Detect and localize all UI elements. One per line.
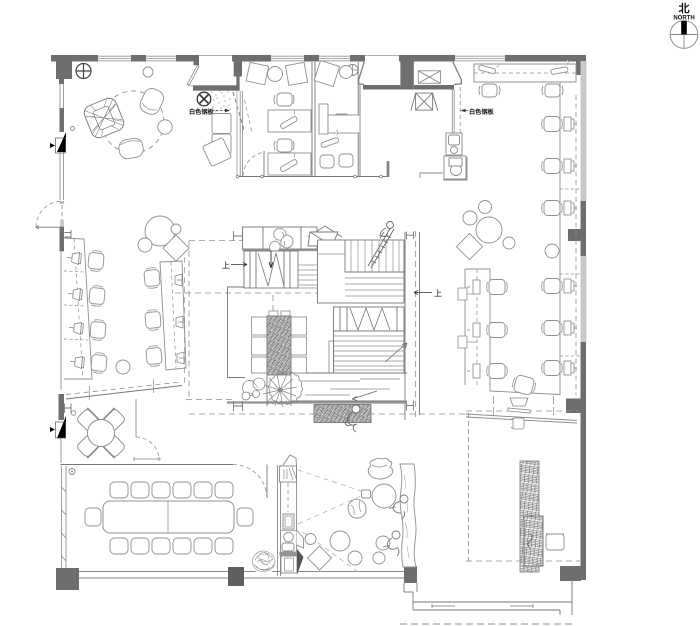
svg-text:上: 上 — [222, 261, 230, 270]
svg-text:上: 上 — [434, 289, 442, 298]
svg-text:白色钢板: 白色钢板 — [469, 108, 495, 116]
svg-text:北: 北 — [679, 1, 690, 15]
svg-text:白色钢板: 白色钢板 — [189, 108, 215, 116]
